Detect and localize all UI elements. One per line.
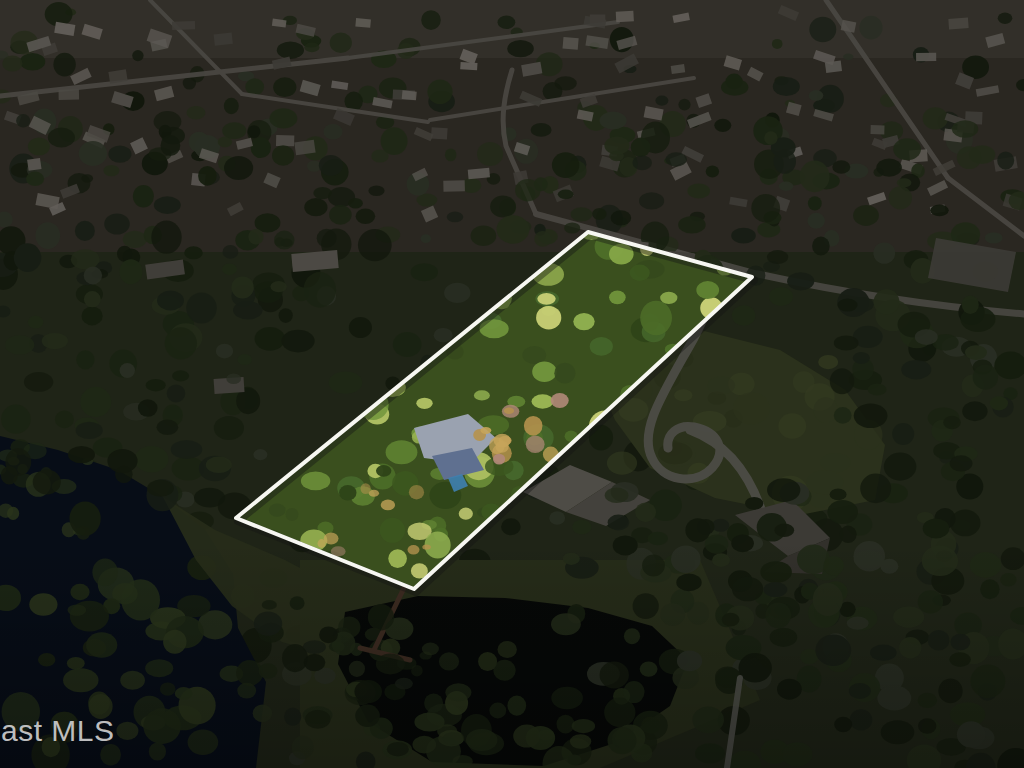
mls-watermark: ast MLS [1,714,115,748]
aerial-photo-frame: ast MLS [0,0,1024,768]
bottom-vignette [0,540,1024,768]
aerial-photo [0,0,1024,768]
